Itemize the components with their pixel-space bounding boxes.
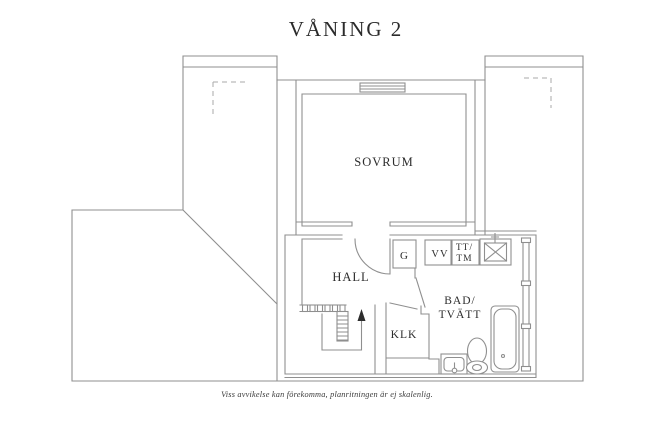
door-sovrum	[355, 239, 390, 274]
floor-plan-page: VÅNING 2 SOVRUM HALL G VV TT/ TM BAD/ TV…	[0, 0, 652, 435]
page-title: VÅNING 2	[289, 17, 404, 41]
window-tick	[522, 367, 531, 372]
box-label-tm: TM	[456, 254, 472, 264]
room-label-klk: KLK	[391, 329, 418, 341]
door-klk	[390, 303, 417, 309]
washbasin-drain	[452, 368, 457, 373]
floor-plan: VÅNING 2 SOVRUM HALL G VV TT/ TM BAD/ TV…	[0, 0, 652, 435]
disclaimer-text: Viss avvikelse kan förekomma, planritnin…	[221, 390, 433, 399]
room-label-bad-line1: BAD/	[444, 295, 475, 307]
stair-direction-arrow-icon	[358, 309, 366, 321]
room-label-hall: HALL	[332, 270, 369, 284]
railing-baluster	[310, 305, 315, 312]
ceiling-dashed-line-left	[213, 82, 245, 114]
window-tick	[522, 324, 531, 329]
window-tick	[522, 281, 531, 286]
washbasin	[441, 354, 467, 374]
railing-baluster	[325, 305, 330, 312]
window-bathroom	[522, 238, 531, 371]
toilet-base-inner	[473, 365, 482, 371]
window-frame	[360, 83, 405, 92]
door-bad	[416, 278, 425, 307]
window-lines	[523, 238, 529, 371]
shower-box	[480, 234, 511, 266]
window-sovrum	[360, 83, 405, 92]
railing-baluster	[318, 305, 323, 312]
railing-baluster	[303, 305, 308, 312]
closet-label-g: G	[400, 250, 409, 262]
railing-baluster	[340, 305, 345, 312]
toilet	[467, 338, 488, 374]
railing-baluster	[333, 305, 338, 312]
room-label-sovrum: SOVRUM	[354, 155, 414, 169]
bathtub	[491, 306, 519, 372]
box-label-vv: VV	[431, 249, 448, 260]
box-label-tt: TT/	[456, 243, 473, 253]
bathtub-inner	[494, 309, 516, 369]
stair-treads	[337, 316, 348, 340]
window-tick	[522, 238, 531, 243]
toilet-bowl	[468, 338, 487, 364]
room-label-bad-line2: TVÄTT	[439, 307, 482, 321]
ceiling-dashed-line-right	[524, 78, 551, 108]
staircase	[300, 305, 366, 350]
